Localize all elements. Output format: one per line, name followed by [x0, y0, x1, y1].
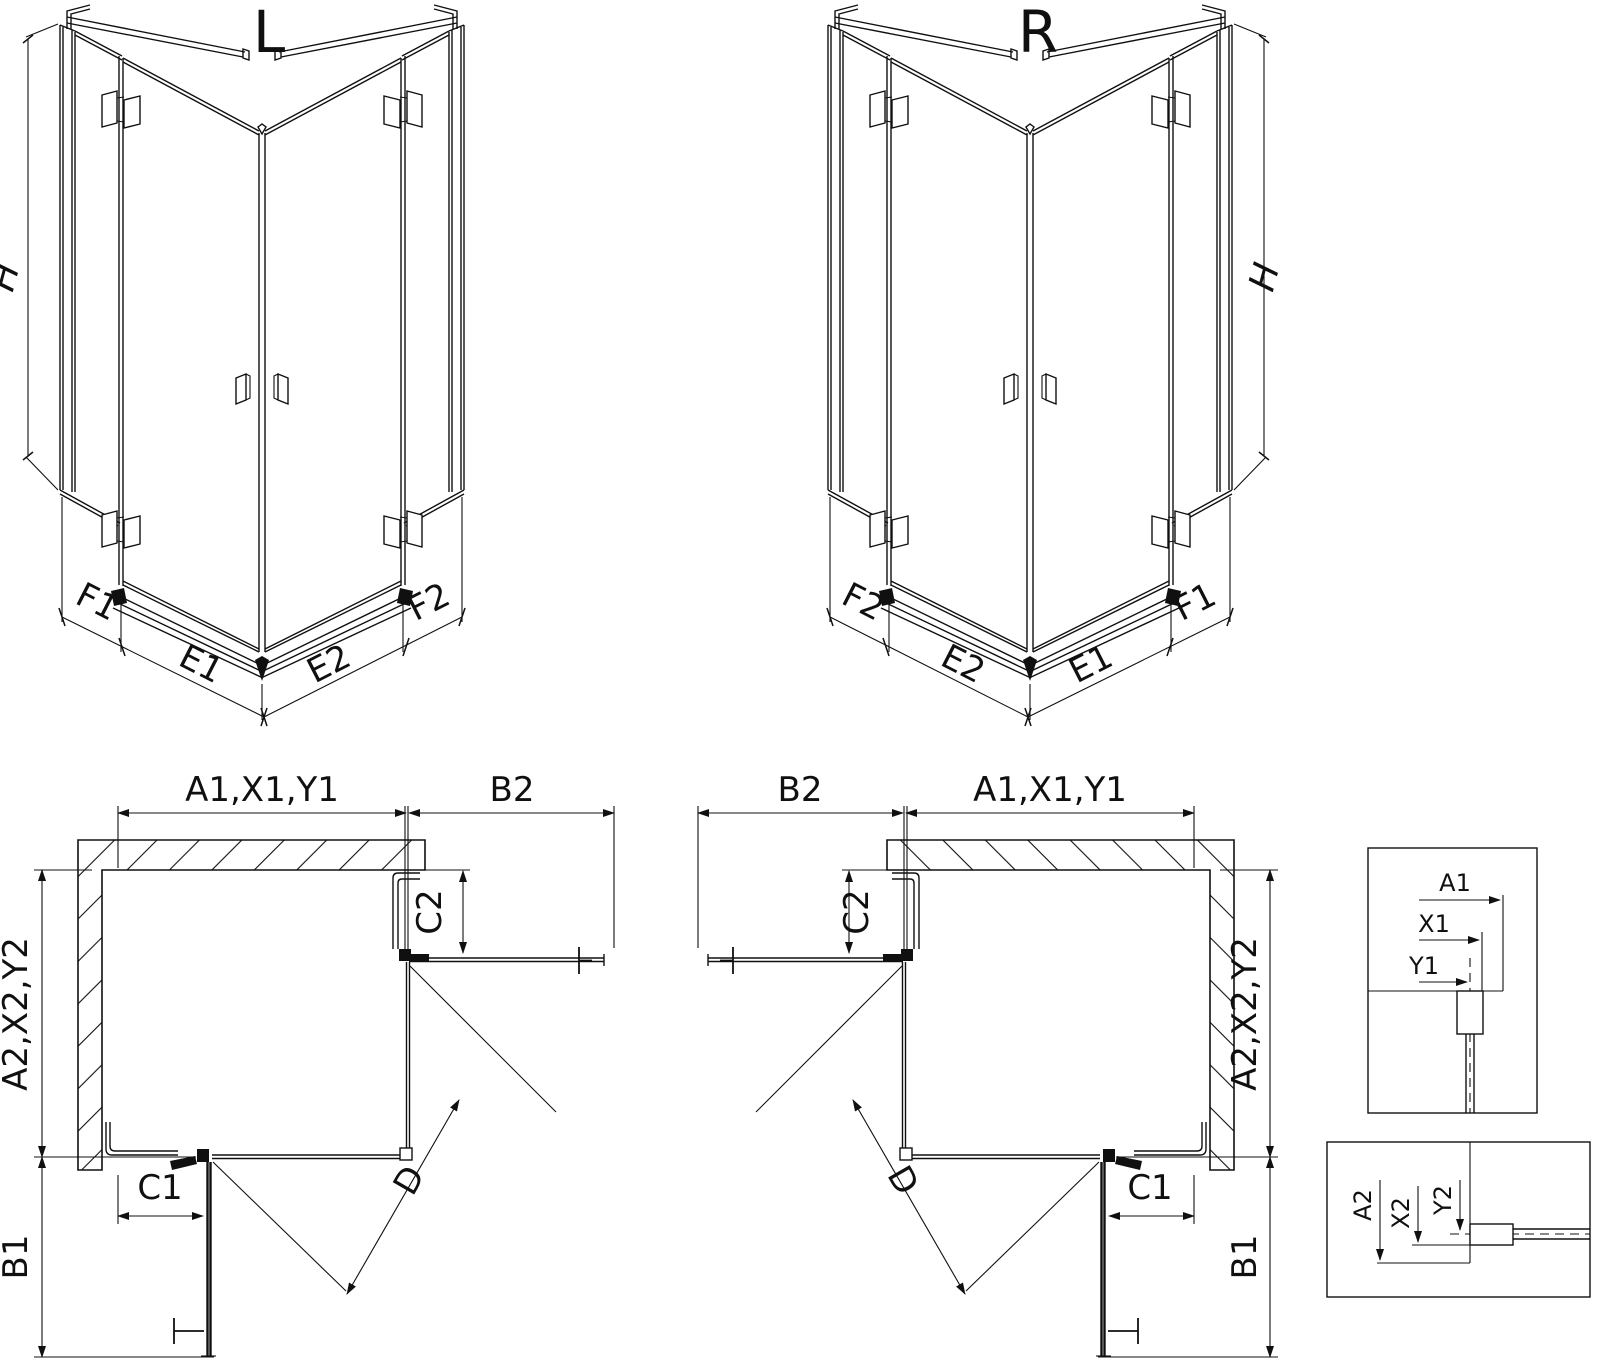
- dim-label-b2-plan-l: B2: [490, 770, 535, 810]
- dim-label-a1x1y1-plan-r: A1,X1,Y1: [973, 770, 1127, 810]
- dim-label-c2-plan-r: C2: [837, 889, 877, 934]
- dim-label-c1-plan-r: C1: [1127, 1168, 1172, 1208]
- dim-label-b1-plan-l: B1: [0, 1235, 36, 1280]
- dim-label-y1-detail: Y1: [1408, 952, 1439, 980]
- dim-label-b1-plan-r: B1: [1225, 1235, 1265, 1280]
- dim-label-a2-detail: A2: [1349, 1189, 1377, 1221]
- background: [0, 0, 1600, 1366]
- shower-enclosure-diagram: L H F1 E1 E2 F2 R H F2 E2 E1 F1 A1,X1,Y1…: [0, 0, 1600, 1366]
- technical-drawing-page: L H F1 E1 E2 F2 R H F2 E2 E1 F1 A1,X1,Y1…: [0, 0, 1600, 1366]
- dim-label-a2x2y2-plan-l: A2,X2,Y2: [0, 937, 36, 1091]
- dim-label-a1-detail: A1: [1439, 869, 1471, 897]
- dim-label-x1-detail: X1: [1418, 910, 1450, 938]
- dim-label-x2-detail: X2: [1387, 1197, 1415, 1229]
- view-title-r: R: [1018, 0, 1058, 66]
- dim-label-b2-plan-r: B2: [778, 770, 823, 810]
- dim-label-a1x1y1-plan-l: A1,X1,Y1: [185, 770, 339, 810]
- view-title-l: L: [253, 0, 285, 66]
- dim-label-c2-plan-l: C2: [410, 889, 450, 934]
- dim-label-c1-plan-l: C1: [137, 1168, 182, 1208]
- dim-label-a2x2y2-plan-r: A2,X2,Y2: [1225, 937, 1265, 1091]
- dim-label-y2-detail: Y2: [1429, 1185, 1457, 1216]
